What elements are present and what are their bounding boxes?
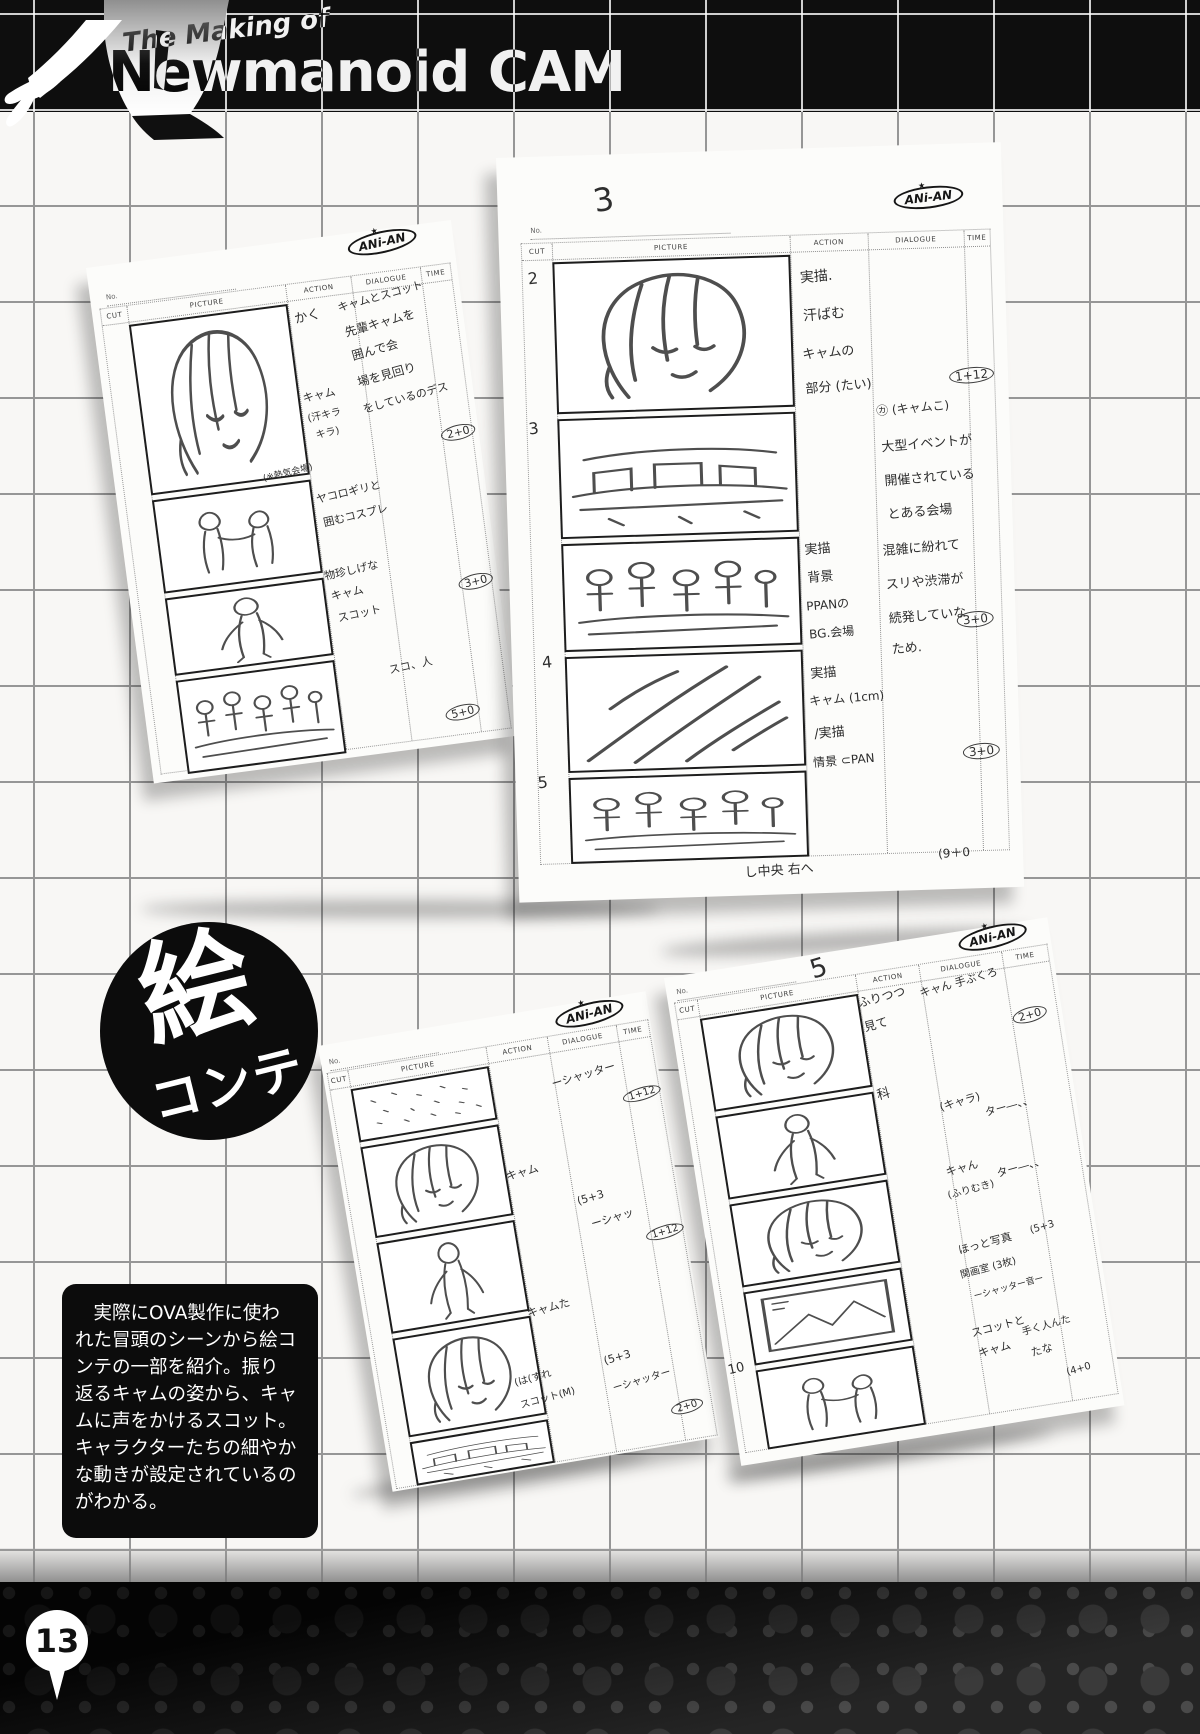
- scan-shadow: [140, 900, 660, 918]
- col-header-dialogue: DIALOGUE: [918, 952, 1003, 981]
- col-header-time: TIME: [964, 230, 990, 247]
- handwritten-note: 3: [590, 179, 617, 220]
- magazine-page: ★ANi-AN No. CUT PICTURE ACTION DIALOGUE …: [0, 0, 1200, 1734]
- sketch-panel: [557, 412, 799, 539]
- bottom-fade-band: [0, 1548, 1200, 1584]
- sketch-drawing: [131, 306, 308, 493]
- sketch-panel: [176, 660, 347, 774]
- sketch-drawing: [758, 1348, 924, 1447]
- sketch-drawing: [363, 1127, 512, 1236]
- star-icon: ★: [980, 921, 989, 931]
- halftone-footer-bar: [0, 1582, 1200, 1734]
- sketch-drawing: [571, 773, 807, 862]
- page-number: 13: [26, 1610, 88, 1672]
- sketch-panel: [129, 304, 310, 495]
- storyboard-sheet-bottom-right: ★ANi-AN No. CUT PICTURE ACTION DIALOGUE …: [664, 917, 1125, 1466]
- anian-logo-text: ANi-AN: [904, 188, 953, 208]
- header-banner: The Making of Newmanoid CAM: [0, 0, 1200, 112]
- storyboard-sheet-bottom-middle: ★ANi-AN No. CUT PICTURE ACTION DIALOGUE …: [318, 991, 720, 1492]
- table-divider: [918, 965, 990, 1414]
- storyboard-badge: 絵 コンテ: [100, 922, 318, 1140]
- table-divider: [1001, 952, 1073, 1401]
- sketch-panel: [152, 480, 323, 594]
- sketch-panel: [376, 1220, 529, 1334]
- star-icon: ★: [576, 998, 585, 1009]
- sketch-drawing: [178, 662, 344, 772]
- sketch-panel: [565, 650, 807, 773]
- sketch-drawing: [732, 1182, 899, 1285]
- anian-logo-text: ANi-AN: [968, 925, 1018, 950]
- caption-box: 実際にOVA製作に使わ れた冒頭のシーンから絵コ ンテの一部を紹介。振り 返るキ…: [62, 1284, 318, 1538]
- sketch-drawing: [554, 257, 793, 412]
- handwritten-note: し中央 右へ: [744, 857, 814, 881]
- sketch-panel: [360, 1124, 513, 1238]
- sketch-panel: [700, 994, 873, 1112]
- col-header-dialogue: DIALOGUE: [547, 1026, 619, 1053]
- star-icon: ★: [918, 181, 926, 191]
- anian-logo: ★ANi-AN: [346, 224, 419, 261]
- table-divider: [350, 276, 412, 740]
- table-divider: [420, 267, 482, 731]
- sketch-panel: [165, 578, 334, 676]
- sketch-panel: [392, 1316, 547, 1438]
- table-divider: [616, 1025, 686, 1439]
- sketch-drawing: [167, 580, 331, 674]
- storyboard-sheet-top-left: ★ANi-AN No. CUT PICTURE ACTION DIALOGUE …: [86, 220, 519, 784]
- sketch-panel: [569, 771, 810, 864]
- sketch-drawing: [154, 482, 320, 592]
- sketch-drawing: [395, 1318, 545, 1435]
- sketch-drawing: [379, 1222, 528, 1331]
- header-title: Newmanoid CAM: [108, 40, 625, 105]
- anian-logo: ★ANi-AN: [892, 182, 964, 212]
- anian-logo-text: ANi-AN: [357, 230, 407, 254]
- storyboard-sheet-top-right: ★ANi-AN No. CUT PICTURE ACTION DIALOGUE …: [496, 142, 1024, 902]
- sketch-drawing: [567, 652, 804, 771]
- table-divider: [964, 230, 984, 850]
- star-icon: ★: [370, 226, 379, 236]
- sketch-panel: [552, 255, 795, 414]
- sketch-panel: [561, 537, 802, 652]
- sketch-drawing: [559, 414, 797, 537]
- table-divider: [868, 233, 888, 853]
- col-header-cut: CUT: [522, 243, 552, 260]
- table-divider: [547, 1037, 617, 1451]
- sketch-drawing: [718, 1094, 885, 1197]
- sketch-drawing: [702, 996, 870, 1109]
- sketch-drawing: [563, 539, 800, 650]
- anian-logo-text: ANi-AN: [564, 1001, 614, 1027]
- badge-kanji: 絵: [128, 922, 264, 1056]
